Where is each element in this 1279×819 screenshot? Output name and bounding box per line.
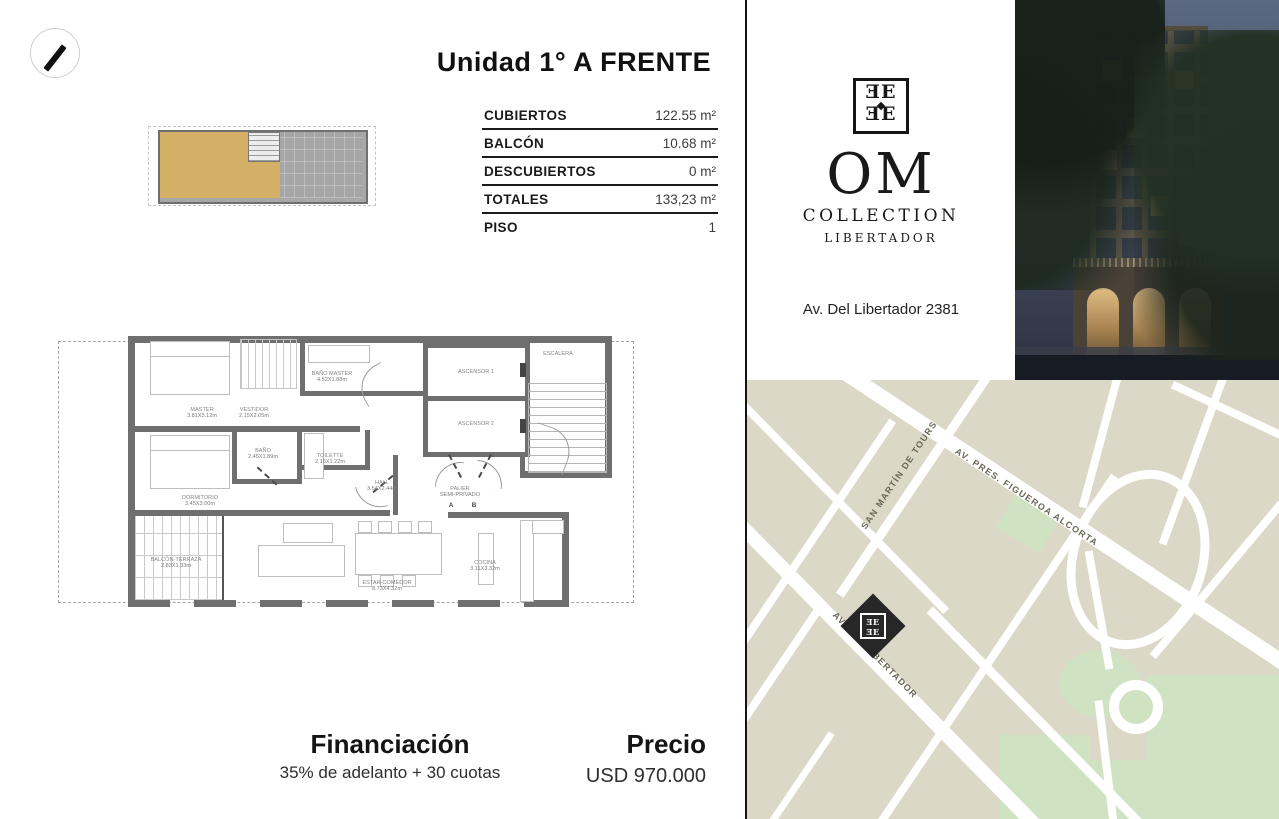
wall-bath-bottom — [232, 479, 302, 484]
brand-collection: COLLECTION — [747, 206, 1015, 226]
page-title: Unidad 1° A FRENTE — [428, 47, 720, 78]
price-block: Precio USD 970.000 — [508, 729, 706, 788]
wall-toilette-right — [365, 430, 370, 470]
vanity-bath-master — [308, 345, 370, 363]
kitchen-counter-top — [532, 520, 564, 534]
wall-elevator-divider — [428, 396, 525, 401]
key-plan-highlighted-unit — [160, 132, 254, 198]
row-label: DESCUBIERTOS — [484, 164, 596, 179]
chair — [358, 521, 372, 533]
room-label-balcon-terraza: BALCÓN-TERRAZA2.83X1.33m — [151, 556, 202, 568]
room-label-master: MASTER3.81X3.12m — [187, 406, 217, 418]
row-label: CUBIERTOS — [484, 108, 567, 123]
brand-line: LIBERTADOR — [747, 231, 1015, 245]
marker-monogram-icon: ƎE ƎE — [860, 613, 886, 639]
room-label-palier: PALIERSEMI-PRIVADO — [440, 485, 480, 497]
wall-bath-master-left — [300, 336, 305, 396]
elevator-door-1 — [520, 363, 526, 377]
wall-mid-upper — [128, 426, 360, 432]
room-label-ascensor-1: ASCENSOR 1 — [458, 368, 494, 374]
row-value: 1 — [708, 220, 716, 235]
wall-bath-right — [297, 430, 302, 484]
room-label-bano-master: BAÑO MASTER4.52X1.88m — [312, 370, 353, 382]
monogram-row: ƎE — [856, 81, 906, 103]
chair — [378, 521, 392, 533]
unit-a-label: A — [449, 502, 454, 509]
sofa — [258, 545, 345, 577]
north-arrow-icon — [30, 28, 80, 78]
location-map: SAN MARTÍN DE TOURS AV. PRES. FIGUEROA A… — [747, 380, 1279, 819]
table-row: TOTALES 133,23 m² — [482, 186, 718, 214]
row-label: TOTALES — [484, 192, 549, 207]
table-row: PISO 1 — [482, 214, 718, 240]
row-value: 10.68 m² — [663, 136, 716, 151]
area-table: CUBIERTOS 122.55 m² BALCÓN 10.68 m² DESC… — [482, 102, 718, 240]
brochure-page: Unidad 1° A FRENTE CUBIERTOS 122.55 m² B… — [0, 0, 1279, 819]
room-label-cocina: COCINA3.11X3.32m — [470, 559, 500, 571]
chair — [398, 521, 412, 533]
row-value: 122.55 m² — [655, 108, 716, 123]
bed-master-pillows — [150, 341, 230, 357]
row-value: 0 m² — [689, 164, 716, 179]
wall-bottom-segmented — [128, 600, 569, 607]
room-label-dormitorio: DORMITORIO3.45X3.00m — [182, 494, 218, 506]
brand-name: OM — [747, 146, 1015, 204]
key-plan-core — [248, 132, 280, 162]
key-plan — [148, 124, 376, 208]
room-label-escalera: ESCALERA — [543, 350, 573, 356]
row-label: BALCÓN — [484, 136, 544, 151]
key-plan-footprint — [158, 130, 368, 204]
price-value: USD 970.000 — [508, 765, 706, 788]
floor-plan: MASTER3.81X3.12m VESTIDOR2.15X2.05m BAÑO… — [58, 333, 638, 615]
street-top-right — [1171, 381, 1279, 439]
om-monogram-icon: ƎE ƎE — [853, 78, 909, 134]
marker-monogram-row: ƎE — [862, 617, 884, 627]
dining-table — [355, 533, 442, 575]
chair — [418, 521, 432, 533]
unit-b-label: B — [472, 502, 477, 509]
room-label-bano: BAÑO2.45X1.89m — [248, 447, 278, 459]
row-value: 133,23 m² — [655, 192, 716, 207]
wall-kitchen-top — [448, 512, 569, 518]
bed-dormitorio-pillows — [150, 435, 230, 451]
room-label-vestidor: VESTIDOR2.15X2.05m — [239, 406, 269, 418]
building-render-photo — [1015, 0, 1279, 385]
table-row: BALCÓN 10.68 m² — [482, 130, 718, 158]
street-bottom-left — [747, 731, 835, 819]
table-row: CUBIERTOS 122.55 m² — [482, 102, 718, 130]
tree-right — [1134, 30, 1279, 360]
wall-left — [128, 336, 135, 604]
brand-block: ƎE ƎE OM COLLECTION LIBERTADOR Av. Del L… — [747, 0, 1015, 380]
street-ne-3 — [747, 603, 824, 819]
room-label-estar-comedor: ESTAR-COMEDOR8.73X4.32m — [362, 579, 411, 591]
key-plan-highlighted-unit-ext — [254, 162, 280, 198]
project-location-marker: ƎE ƎE — [840, 593, 905, 658]
street-san-martin-de-tours — [836, 380, 1028, 598]
roundabout — [1109, 680, 1163, 734]
coffee-table — [283, 523, 333, 543]
brand-address: Av. Del Libertador 2381 — [747, 301, 1015, 318]
table-row: DESCUBIERTOS 0 m² — [482, 158, 718, 186]
north-arrow-needle — [43, 44, 66, 71]
wall-bath-left — [232, 430, 237, 484]
room-label-ascensor-2: ASCENSOR 2 — [458, 420, 494, 426]
room-label-toilette: TOILETTE2.16X1.22m — [315, 452, 345, 464]
wardrobe-master — [240, 339, 297, 389]
room-label-hall: HALL3.54X2.44m — [367, 479, 397, 491]
price-heading: Precio — [508, 729, 706, 760]
street-loop — [1044, 451, 1232, 668]
row-label: PISO — [484, 220, 518, 235]
elevator-door-2 — [520, 419, 526, 433]
marker-monogram-row: ƎE — [862, 627, 884, 637]
